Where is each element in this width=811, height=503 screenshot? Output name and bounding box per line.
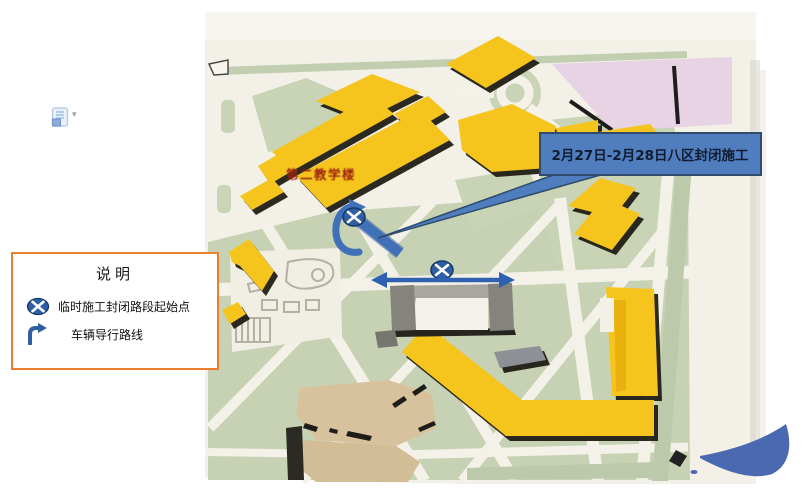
closure-start-marker[interactable] bbox=[343, 208, 365, 226]
detour-route-icon bbox=[26, 323, 48, 345]
legend-item-label: 车辆导行路线 bbox=[71, 326, 143, 343]
legend-item-label: 临时施工封闭路段起始点 bbox=[58, 298, 190, 315]
legend-item-detour-route: 车辆导行路线 bbox=[26, 323, 217, 345]
legend-item-closure-point: 临时施工封闭路段起始点 bbox=[26, 297, 217, 316]
closure-point-icon bbox=[26, 297, 51, 316]
legend-box[interactable]: 说明 临时施工封闭路段起始点 车辆导行路线 bbox=[11, 252, 219, 370]
closure-end-marker[interactable] bbox=[431, 261, 453, 279]
legend-title: 说明 bbox=[13, 263, 217, 284]
building-label: 第二教学楼 bbox=[286, 167, 356, 182]
callout-text: 2月27日-2月28日八区封闭施工 bbox=[552, 147, 749, 164]
